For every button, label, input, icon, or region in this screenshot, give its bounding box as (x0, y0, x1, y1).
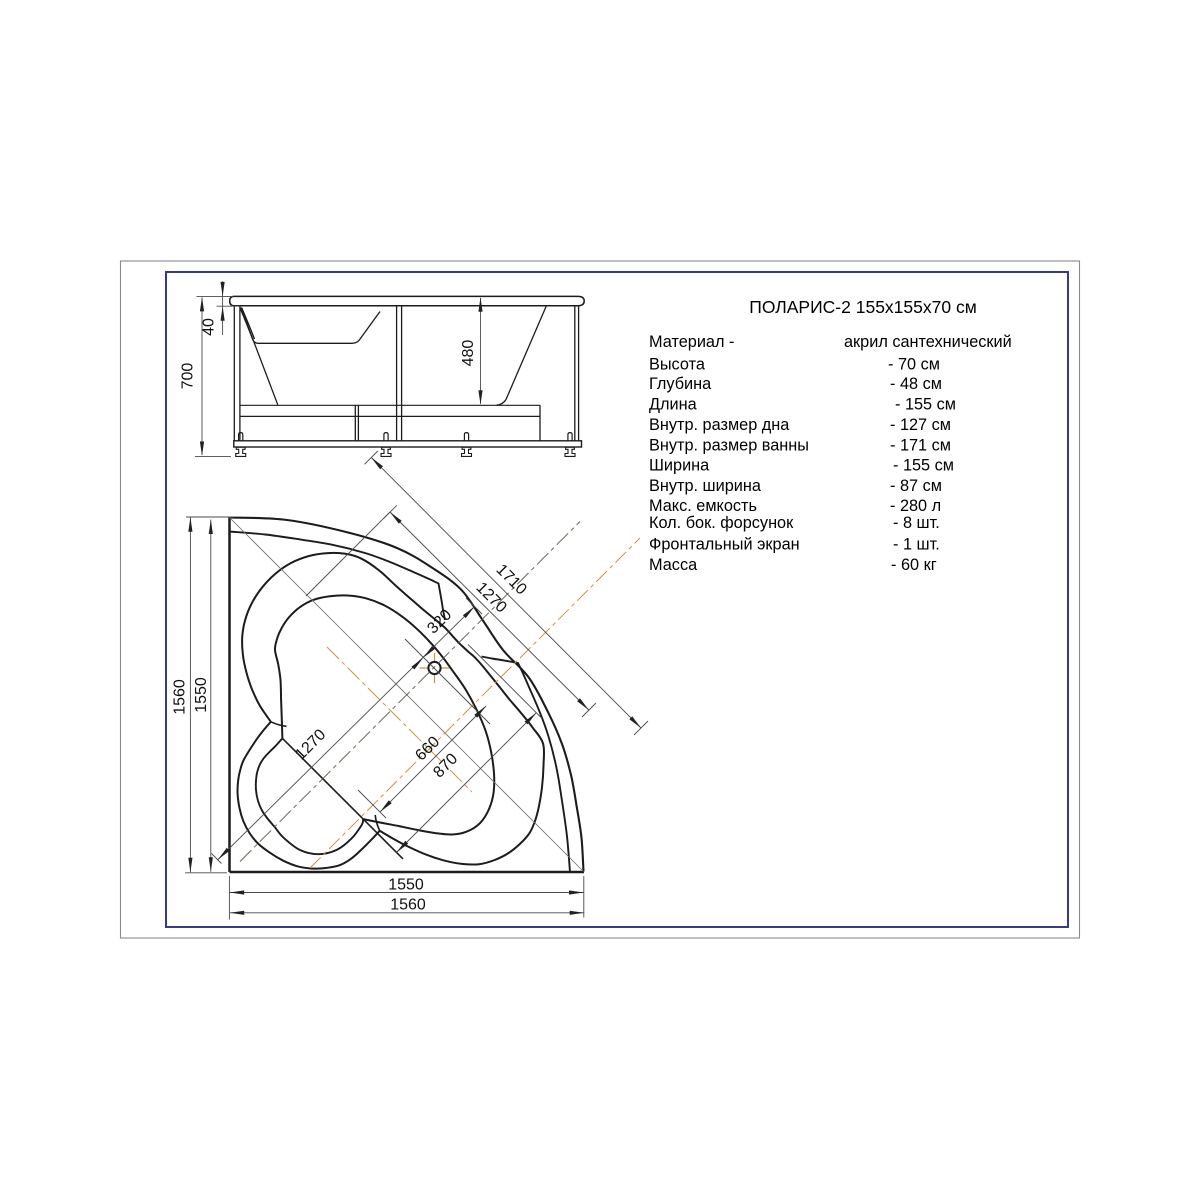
svg-text:Глубина: Глубина (649, 375, 712, 393)
svg-text:- 280 л: - 280 л (890, 497, 941, 515)
svg-text:Фронтальный экран: Фронтальный экран (649, 535, 800, 553)
svg-text:- 155 см: - 155 см (893, 456, 954, 474)
svg-text:Материал -: Материал - (649, 333, 734, 351)
svg-text:ПОЛАРИС-2 155х155х70 см: ПОЛАРИС-2 155х155х70 см (749, 297, 976, 317)
svg-text:- 87 см: - 87 см (890, 477, 942, 495)
svg-text:- 155 см: - 155 см (895, 396, 956, 414)
svg-text:- 1 шт.: - 1 шт. (893, 535, 940, 553)
svg-text:1550: 1550 (388, 877, 424, 894)
svg-text:акрил сантехнический: акрил сантехнический (844, 333, 1012, 351)
svg-text:Длина: Длина (649, 396, 698, 414)
svg-text:1550: 1550 (193, 677, 210, 713)
svg-text:Высота: Высота (649, 355, 706, 373)
svg-text:1560: 1560 (390, 897, 426, 914)
svg-text:- 70 см: - 70 см (888, 355, 940, 373)
svg-text:- 171 см: - 171 см (890, 437, 951, 455)
svg-text:Ширина: Ширина (649, 456, 710, 474)
svg-text:- 48 см: - 48 см (890, 375, 942, 393)
svg-text:1560: 1560 (172, 679, 189, 715)
svg-text:Макс. емкость: Макс. емкость (649, 497, 757, 515)
svg-text:- 60 кг: - 60 кг (891, 556, 937, 574)
svg-text:Внутр. размер ванны: Внутр. размер ванны (649, 437, 809, 455)
svg-text:40: 40 (201, 318, 218, 336)
svg-text:Масса: Масса (649, 556, 698, 574)
svg-text:480: 480 (460, 340, 477, 367)
svg-text:Внутр. ширина: Внутр. ширина (649, 477, 762, 495)
svg-text:Внутр. размер дна: Внутр. размер дна (649, 416, 790, 434)
svg-text:- 127 см: - 127 см (890, 416, 951, 434)
svg-text:Кол. бок. форсунок: Кол. бок. форсунок (649, 514, 794, 532)
svg-text:700: 700 (180, 363, 197, 390)
svg-text:- 8 шт.: - 8 шт. (893, 514, 940, 532)
